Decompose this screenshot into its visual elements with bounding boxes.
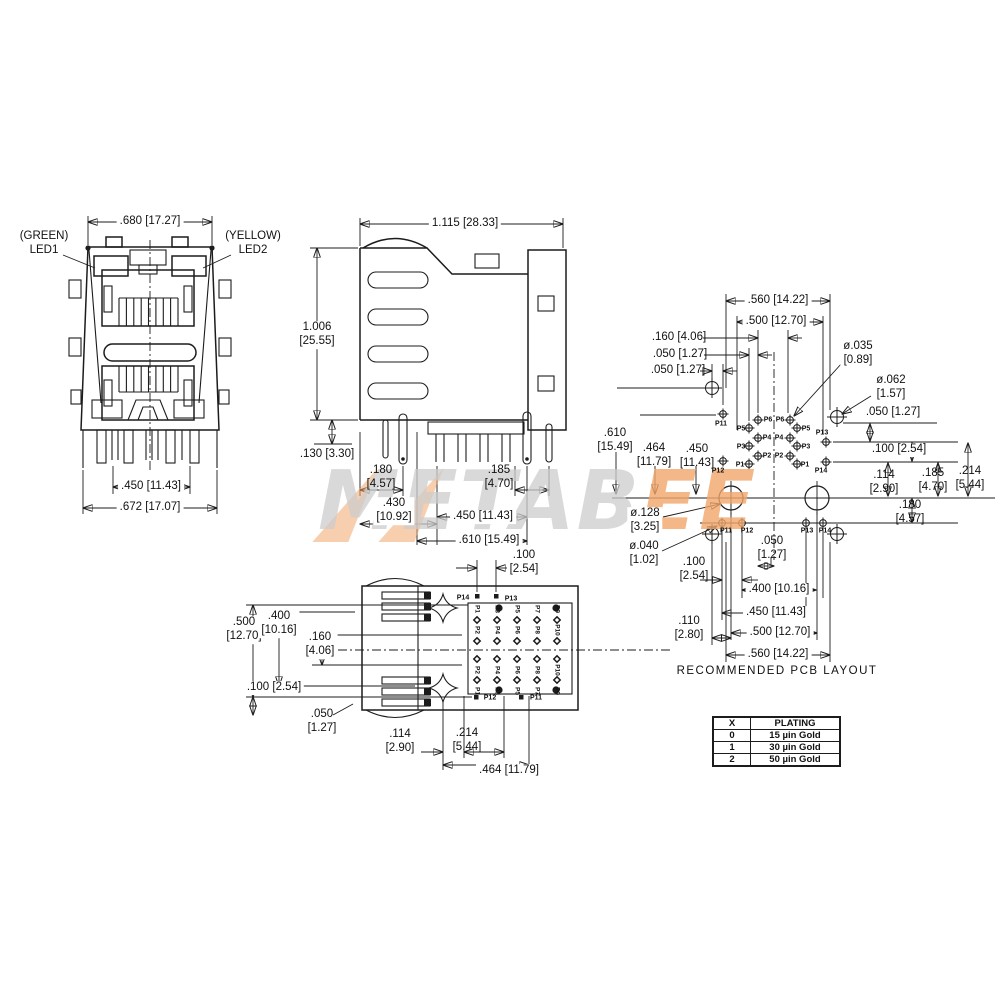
dim-pcb-500-b: .500 [12.70]	[747, 626, 814, 640]
plating-value: 30 µin Gold	[751, 742, 841, 754]
plating-col-plating: PLATING	[751, 717, 841, 730]
dim-side-height: 1.006 [25.55]	[296, 321, 337, 349]
pcb-pin-l3: P3	[737, 444, 746, 451]
pcb-bottom-pin-p11: P11	[720, 528, 732, 535]
pcb-pin-r4: P4	[775, 435, 784, 442]
dim-pcb-100-right: .100 [2.54]	[869, 443, 929, 457]
pcb-pin-r2: P2	[775, 453, 784, 460]
dim-hole-corner: ø.062 [1.57]	[873, 374, 908, 402]
plating-value: 50 µin Gold	[751, 754, 841, 767]
dim-pcb-560-b: .560 [14.22]	[745, 648, 812, 662]
grid-pin-label: P10	[554, 624, 561, 636]
grid-pin-label: P1	[474, 605, 481, 613]
grid-pin-label: P8	[534, 626, 541, 634]
dim-pcb-100-bl: .100 [2.54]	[680, 556, 709, 584]
grid-pin-label: P10	[554, 664, 561, 676]
dim-hole-signal: ø.035 [0.89]	[840, 340, 875, 368]
technical-drawing-sheet: METABEE (GREEN) LED1 (YELLOW) LED2 .680 …	[0, 0, 1000, 1000]
dim-front-pin-span: .450 [11.43]	[118, 480, 184, 494]
dim-pcb-050-b: .050 [1.27]	[651, 364, 705, 378]
pcb-pin-l1: P1	[736, 462, 745, 469]
dim-pcb-464: .464 [11.79]	[637, 442, 671, 470]
dim-side-depth: 1.115 [28.33]	[429, 217, 501, 231]
plating-row: 0 15 µin Gold	[713, 730, 840, 742]
led2-callout: (YELLOW) LED2	[225, 230, 281, 258]
plating-col-x: X	[713, 717, 751, 730]
pcb-bottom-pin-p13: P13	[801, 528, 813, 535]
pcb-bottom-pin-p12: P12	[741, 528, 753, 535]
grid-pin-label: P4	[494, 626, 501, 634]
grid-pin-label: P7	[534, 605, 541, 613]
grid-pin-label: P6	[514, 626, 521, 634]
dim-bottom-214: .214 [5.44]	[453, 727, 482, 755]
pcb-layout-title: RECOMMENDED PCB LAYOUT	[677, 665, 878, 677]
front-view-drawing	[69, 237, 231, 472]
dim-bottom-100-top: .100 [2.54]	[510, 549, 539, 577]
pin-label-p11: P11	[530, 695, 542, 702]
grid-pin-label: P4	[494, 666, 501, 674]
dim-pcb-110: .110 [2.80]	[675, 615, 704, 643]
dim-pcb-400: .400 [10.16]	[746, 583, 813, 597]
dim-pcb-610: .610 [15.49]	[597, 427, 632, 455]
led1-callout: (GREEN) LED1	[20, 230, 69, 258]
dim-bottom-160: .160 [4.06]	[303, 631, 338, 659]
dim-side-standoff: .130 [3.30]	[300, 448, 354, 462]
plating-row: 2 50 µin Gold	[713, 754, 840, 767]
dim-pcb-050-right: .050 [1.27]	[863, 406, 923, 420]
grid-pin-label: P9	[554, 687, 561, 695]
grid-pin-label: P5	[514, 605, 521, 613]
dim-pcb-180: .180 [4.57]	[896, 499, 925, 527]
plating-code: 2	[713, 754, 751, 767]
dim-side-450: .450 [11.43]	[450, 510, 516, 524]
dim-pcb-214: .214 [5.44]	[956, 465, 985, 493]
pin-label-p12: P12	[484, 695, 496, 702]
plating-table: X PLATING 0 15 µin Gold 1 30 µin Gold 2 …	[712, 716, 841, 767]
pcb-pin-r3: P3	[802, 444, 811, 451]
dim-side-185: .185 [4.70]	[485, 464, 514, 492]
plating-header-row: X PLATING	[713, 717, 840, 730]
dim-pcb-160: .160 [4.06]	[652, 331, 706, 345]
dim-pcb-050-bc: .050 [1.27]	[758, 535, 787, 563]
plating-row: 1 30 µin Gold	[713, 742, 840, 754]
pcb-pin-r1: P1	[801, 462, 810, 469]
pcb-pin-l6: P6	[764, 417, 773, 424]
dim-pcb-560-top: .560 [14.22]	[745, 294, 812, 308]
plating-code: 0	[713, 730, 751, 742]
dim-side-180: .180 [4.57]	[367, 464, 396, 492]
side-view-drawing	[360, 239, 566, 465]
plating-value: 15 µin Gold	[751, 730, 841, 742]
grid-pin-label: P8	[534, 666, 541, 674]
dim-pcb-450-b: .450 [11.43]	[743, 606, 809, 620]
dim-bottom-464: .464 [11.79]	[476, 764, 542, 778]
dim-pcb-050-a: .050 [1.27]	[653, 348, 707, 362]
dim-hole-shield: ø.040 [1.02]	[626, 540, 661, 568]
grid-pin-label: P5	[514, 687, 521, 695]
dim-bottom-050: .050 [1.27]	[308, 708, 337, 736]
grid-pin-label: P3	[494, 605, 501, 613]
dim-pcb-114: .114 [2.90]	[870, 469, 899, 497]
grid-pin-label: P6	[514, 666, 521, 674]
pcb-pin-r6: P6	[776, 417, 785, 424]
pcb-pin-p11: P11	[715, 421, 727, 428]
pcb-pin-p12: P12	[712, 468, 724, 475]
dim-bottom-114: .114 [2.90]	[386, 728, 415, 756]
pcb-pin-p13: P13	[816, 430, 828, 437]
dim-front-width-bottom: .672 [17.07]	[117, 501, 184, 515]
grid-pin-label: P3	[494, 687, 501, 695]
grid-pin-label: P2	[474, 666, 481, 674]
plating-code: 1	[713, 742, 751, 754]
dim-side-610: .610 [15.49]	[456, 534, 523, 548]
dim-front-width: .680 [17.27]	[117, 215, 184, 229]
grid-pin-label: P1	[474, 687, 481, 695]
pcb-pin-l2: P2	[763, 453, 772, 460]
pin-label-p13: P13	[505, 596, 517, 603]
grid-pin-label: P7	[534, 687, 541, 695]
dim-side-430: .430 [10.92]	[373, 497, 414, 525]
pcb-pin-l5: P5	[737, 426, 746, 433]
dim-pcb-450-left: .450 [11.43]	[680, 443, 714, 471]
grid-pin-label: P2	[474, 626, 481, 634]
grid-pin-label: P9	[554, 605, 561, 613]
dim-bottom-400: .400 [10.16]	[258, 610, 299, 638]
dim-bottom-100-left: .100 [2.54]	[244, 681, 304, 695]
pcb-bottom-pin-p14: P14	[819, 528, 831, 535]
dim-pcb-185: .185 [4.70]	[919, 467, 948, 495]
pcb-pin-p14: P14	[815, 468, 827, 475]
dim-hole-post: ø.128 [3.25]	[627, 507, 662, 535]
dim-pcb-500-top: .500 [12.70]	[743, 315, 810, 329]
pcb-pin-r5: P5	[802, 426, 811, 433]
pin-label-p14: P14	[457, 595, 469, 602]
pcb-pin-l4: P4	[763, 435, 772, 442]
